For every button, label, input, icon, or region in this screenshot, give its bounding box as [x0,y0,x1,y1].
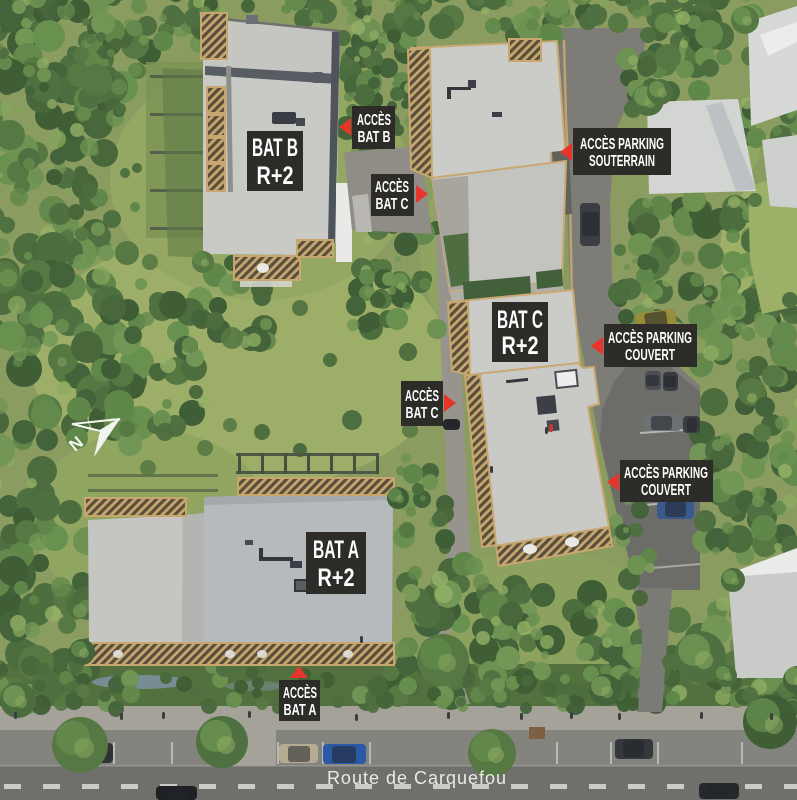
svg-text:COUVERT: COUVERT [641,482,691,499]
svg-text:BAT C: BAT C [376,196,409,213]
svg-text:ACCÈS: ACCÈS [405,386,439,405]
svg-text:R+2: R+2 [318,564,355,592]
svg-text:BAT C: BAT C [497,306,543,334]
svg-text:Route de Carquefou: Route de Carquefou [327,768,507,788]
svg-text:ACCÈS PARKING: ACCÈS PARKING [624,463,708,482]
svg-text:ACCÈS: ACCÈS [375,177,409,196]
svg-text:BAT C: BAT C [406,405,439,422]
svg-text:BAT A: BAT A [313,536,359,564]
svg-text:BAT A: BAT A [284,702,317,719]
svg-text:ACCÈS PARKING: ACCÈS PARKING [580,134,664,153]
svg-text:BAT B: BAT B [252,134,298,162]
svg-text:BAT B: BAT B [358,129,391,146]
svg-text:R+2: R+2 [257,162,294,190]
svg-text:ACCÈS PARKING: ACCÈS PARKING [608,328,692,347]
svg-text:R+2: R+2 [502,332,539,360]
svg-text:SOUTERRAIN: SOUTERRAIN [589,153,655,170]
svg-text:ACCÈS: ACCÈS [283,683,317,702]
svg-text:COUVERT: COUVERT [625,347,675,364]
svg-text:ACCÈS: ACCÈS [357,110,391,129]
